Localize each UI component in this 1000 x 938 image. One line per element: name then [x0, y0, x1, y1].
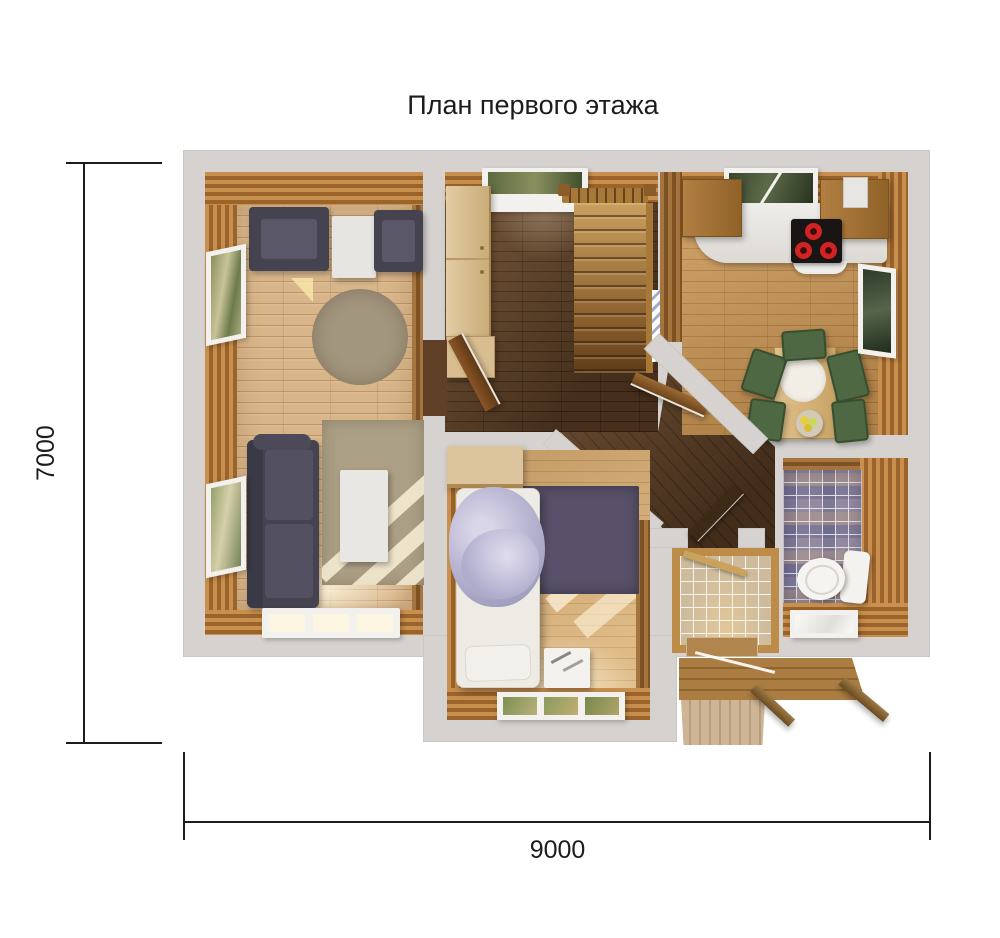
bedroom-cabinet [447, 446, 523, 488]
living-window-left-upper [206, 244, 246, 347]
window-glass [211, 250, 241, 340]
leaning-board [683, 550, 748, 577]
stair-newel-post [644, 184, 656, 196]
nightstand-shelf [563, 659, 584, 672]
stairs [574, 203, 646, 373]
sofa-armrest [253, 434, 311, 450]
kitchen-window-right [858, 263, 896, 358]
dim-tick-bottom [66, 742, 162, 744]
range-hood [843, 177, 868, 208]
dim-tick-right [929, 752, 931, 840]
dim-label-height: 7000 [32, 415, 64, 491]
window-pane [503, 697, 537, 715]
bedroom-window [497, 692, 625, 720]
living-window-left-lower [206, 476, 246, 579]
window-pane [544, 697, 578, 715]
window-pane [585, 697, 619, 715]
vestibule-wall-top-right [738, 528, 765, 548]
kitchen-wall-left [660, 172, 682, 342]
dinner-plate [780, 356, 826, 402]
wardrobe-divider [446, 258, 489, 260]
living-wall-top [205, 172, 423, 205]
cooktop [791, 219, 842, 263]
round-rug [312, 289, 408, 385]
side-table [332, 216, 376, 278]
window-glass [211, 482, 241, 572]
sofa-cushion [265, 450, 313, 520]
dining-chair [781, 329, 827, 362]
living-door-opening [423, 340, 447, 416]
toilet-seat-ring [803, 563, 841, 597]
dim-tick-left [183, 752, 185, 840]
armchair-cushion [382, 220, 415, 262]
window-mullion [754, 173, 783, 203]
wardrobe-handle [480, 270, 484, 274]
burner [795, 242, 812, 259]
pillow [464, 644, 531, 682]
bathroom-window [790, 610, 858, 638]
armchair-cushion [261, 219, 317, 259]
sofa [247, 440, 319, 608]
stair-newel-post [558, 184, 570, 196]
armchair [374, 210, 423, 272]
stair-railing-top [562, 188, 648, 203]
window-glass [795, 615, 853, 633]
dining-chair [831, 398, 869, 443]
window-pane [313, 614, 349, 632]
wardrobe [446, 186, 491, 336]
fruit [804, 424, 812, 432]
porch-step [681, 700, 765, 745]
fruit-bowl [796, 410, 823, 437]
kitchen-cabinet-left [682, 179, 742, 237]
blanket-fold [461, 529, 539, 599]
dim-label-width: 9000 [184, 836, 931, 865]
floor-plan-page: План первого этажа 7000 9000 [0, 0, 1000, 938]
burner [805, 223, 822, 240]
living-window-bottom [262, 608, 400, 638]
nightstand [544, 648, 590, 688]
nightstand-shelf [551, 651, 572, 664]
porch-deck [679, 658, 865, 700]
coffee-table [340, 470, 388, 562]
vestibule-wall-top-left [648, 528, 688, 548]
dim-line-vertical [83, 163, 85, 743]
window-pane [357, 614, 393, 632]
window-pane [269, 614, 305, 632]
burner [820, 242, 837, 259]
sofa-backrest [247, 440, 263, 608]
page-title: План первого этажа [407, 90, 658, 121]
dim-line-horizontal [184, 821, 931, 823]
window-glass [863, 269, 891, 353]
dim-tick-top [66, 162, 162, 164]
sofa-cushion [265, 524, 313, 598]
wardrobe-handle [480, 246, 484, 250]
armchair [249, 207, 329, 271]
bed [456, 488, 540, 688]
